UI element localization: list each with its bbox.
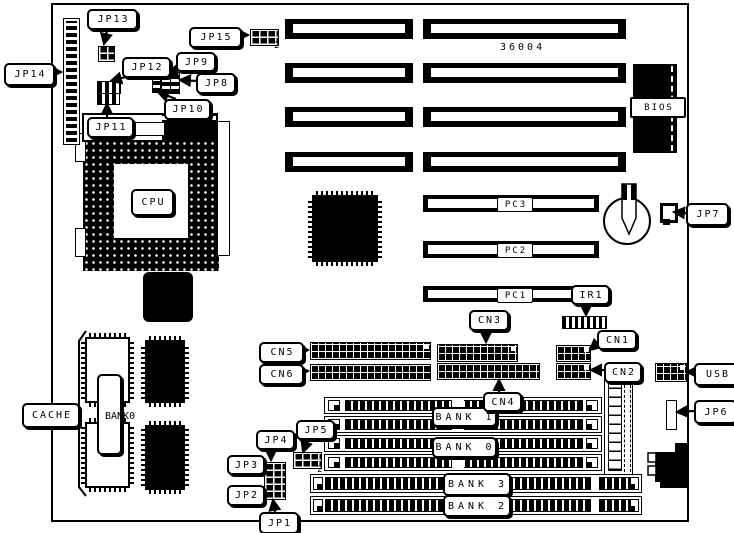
sram-chip-2 bbox=[141, 421, 189, 494]
jp8-label: JP8 bbox=[196, 73, 236, 94]
jp13-label: JP13 bbox=[87, 9, 138, 30]
jp14-header bbox=[63, 18, 80, 145]
cn5-connector bbox=[310, 342, 431, 360]
controller-chip bbox=[143, 272, 193, 322]
simm-latch bbox=[313, 499, 323, 512]
cpu-label: CPU bbox=[131, 189, 174, 216]
jp8-jumper bbox=[170, 72, 180, 94]
jp12-label: JP12 bbox=[122, 57, 171, 78]
simm-contacts bbox=[507, 477, 591, 490]
sram-chip-body bbox=[145, 425, 185, 490]
cn3-connector bbox=[437, 344, 518, 362]
chipset-chip-body bbox=[312, 195, 378, 262]
jp3-label: JP3 bbox=[227, 455, 265, 475]
bank2-label: BANK 2 bbox=[443, 495, 511, 517]
cache-label: CACHE bbox=[22, 403, 80, 428]
isa-slot-1-left bbox=[285, 19, 413, 39]
jp9-label: JP9 bbox=[176, 52, 216, 72]
part-number: 36004 bbox=[500, 42, 545, 53]
jp5-pin2-marker: 2 bbox=[317, 465, 322, 475]
socket-side-bar bbox=[217, 121, 230, 256]
bank0-label: BANK 0 bbox=[432, 437, 497, 458]
cn5-pin1-cell bbox=[424, 344, 429, 349]
jp15-label: JP15 bbox=[189, 27, 242, 48]
bios-label: BIOS bbox=[630, 97, 686, 118]
isa-slot-2-left bbox=[285, 63, 413, 83]
jp10-label: JP10 bbox=[164, 99, 211, 120]
ir1-label: IR1 bbox=[571, 285, 610, 305]
pc2-label: PC2 bbox=[497, 243, 533, 258]
cn1-connector bbox=[556, 345, 591, 362]
jp14-header-pins bbox=[66, 21, 77, 142]
usb-pin1-cell bbox=[680, 365, 685, 370]
sram-chip-1 bbox=[141, 336, 189, 407]
simm-contacts bbox=[345, 457, 583, 468]
simm-latch bbox=[328, 457, 340, 468]
power-connector-keying bbox=[624, 380, 631, 472]
power-connector-pins bbox=[608, 381, 622, 471]
simm-contacts bbox=[599, 499, 631, 512]
cn2-label: CN2 bbox=[604, 362, 642, 383]
isa-slot-2-right bbox=[423, 63, 626, 83]
power-connector bbox=[604, 377, 633, 475]
simm-latch bbox=[586, 457, 598, 468]
simm-contacts bbox=[599, 477, 631, 490]
pc1-label: PC1 bbox=[497, 288, 533, 303]
ir1-connector bbox=[562, 316, 607, 329]
simm-latch bbox=[586, 438, 598, 449]
isa-slot-3-right bbox=[423, 107, 626, 127]
chipset-chip bbox=[308, 191, 382, 266]
simm-contacts bbox=[325, 499, 457, 512]
socket-lever-bottom bbox=[75, 228, 86, 257]
simm-latch bbox=[629, 499, 639, 512]
simm-contacts bbox=[325, 477, 457, 490]
jp6-component bbox=[666, 400, 677, 430]
cn1-pin1-cell bbox=[584, 347, 589, 352]
cn3-pin1-cell bbox=[511, 346, 516, 351]
cn5-label: CN5 bbox=[259, 342, 304, 363]
jp7-label: JP7 bbox=[686, 203, 729, 226]
usb-label: USB bbox=[694, 363, 734, 386]
jp1-jp4-jumper-block bbox=[264, 462, 286, 500]
simm-latch bbox=[629, 477, 639, 490]
sram-chip-body bbox=[145, 340, 185, 403]
motherboard-diagram: 36004 BIOS PC3 PC2 PC1 bbox=[0, 0, 734, 533]
cache-bank0-label: BANK0 bbox=[97, 374, 122, 455]
cn1-label: CN1 bbox=[597, 330, 637, 350]
jp7-jumper-pin bbox=[663, 219, 670, 225]
jp15-pin2-marker: 2 bbox=[274, 41, 279, 51]
jp4-label: JP4 bbox=[256, 430, 295, 450]
jp14-label: JP14 bbox=[4, 63, 55, 86]
simm-contacts bbox=[507, 499, 591, 512]
pc3-label: PC3 bbox=[497, 197, 533, 212]
usb-connector bbox=[655, 363, 687, 382]
jp6-label: JP6 bbox=[694, 400, 734, 424]
simm-latch bbox=[586, 419, 598, 430]
jp1-label: JP1 bbox=[259, 512, 299, 533]
isa-slot-3-left bbox=[285, 107, 413, 127]
jp11-label: JP11 bbox=[87, 117, 134, 138]
cn2-pin1-cell bbox=[584, 365, 589, 370]
simm-latch bbox=[328, 400, 340, 411]
cn6-label: CN6 bbox=[259, 364, 304, 385]
cn3-label: CN3 bbox=[469, 310, 509, 331]
cache-bank0-text: BANK0 bbox=[105, 407, 116, 423]
isa-slot-1-right bbox=[423, 19, 626, 39]
isa-slot-4-right bbox=[423, 152, 626, 172]
jp2-label: JP2 bbox=[227, 485, 265, 506]
vrm-bar-mid-box bbox=[129, 122, 165, 136]
jp5-label: JP5 bbox=[296, 420, 335, 440]
cn4-label: CN4 bbox=[483, 392, 522, 412]
cn2-connector bbox=[556, 363, 591, 380]
isa-slot-4-left bbox=[285, 152, 413, 172]
bank3-label: BANK 3 bbox=[443, 473, 511, 496]
simm-latch bbox=[313, 477, 323, 490]
cn6-connector bbox=[310, 364, 431, 381]
cn4-connector bbox=[437, 363, 540, 380]
jp13-jumper bbox=[98, 46, 115, 62]
simm-latch bbox=[586, 400, 598, 411]
jp12-jumper-row2 bbox=[97, 93, 120, 105]
